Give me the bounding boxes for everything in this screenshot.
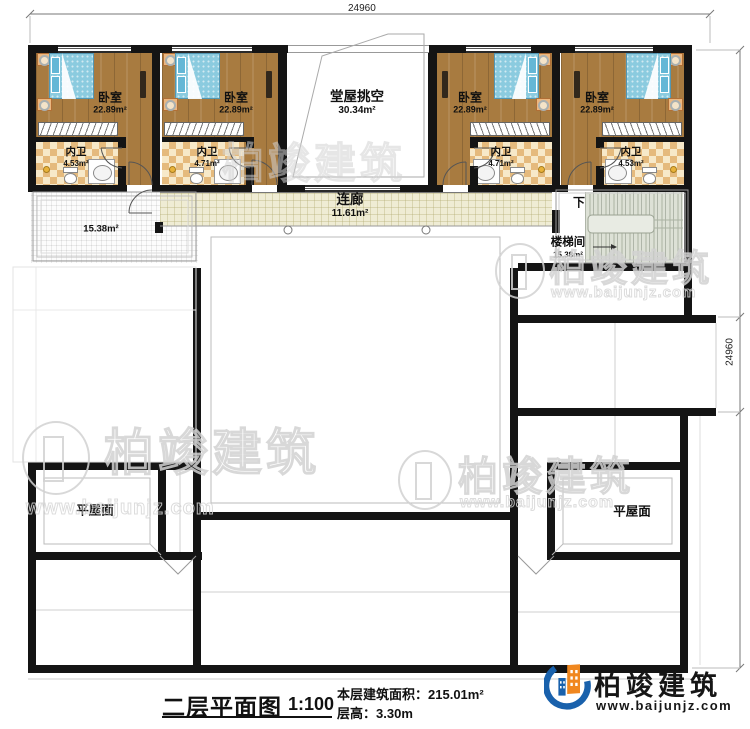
floor-area-row: 本层建筑面积：215.01m² [337, 684, 484, 703]
toilet-icon [190, 173, 203, 184]
bedroom-3-label: 卧室22.89m² [453, 90, 487, 115]
bathroom-4-label: 内卫4.53m² [618, 146, 643, 168]
brand-logo-icon [544, 660, 592, 712]
hall-void-floor [288, 52, 428, 185]
stairwell-label: 楼梯间15.38m² [551, 236, 586, 259]
floor-height-row: 层高：3.30m [337, 703, 413, 722]
sink-icon [219, 165, 238, 181]
watermark-logo-icon [398, 450, 452, 510]
wall [152, 45, 160, 192]
floor-plan-drawing: 卧室22.89m² 卧室22.89m² 卧室22.89m² 卧室22.89m² … [0, 0, 750, 729]
wall [684, 45, 692, 323]
wall [278, 45, 287, 192]
closet-icon [38, 122, 118, 136]
pillow-icon [660, 57, 669, 74]
wall [552, 45, 560, 192]
bedroom-2-furniture [162, 52, 278, 185]
wall [518, 263, 692, 271]
wall [162, 137, 254, 142]
pillow-icon [660, 76, 669, 93]
wall [158, 470, 166, 560]
sink-icon [93, 165, 112, 181]
tv-icon [266, 71, 272, 98]
pillow-icon [528, 76, 537, 93]
wall [518, 408, 716, 416]
lamp-icon [43, 166, 50, 173]
hall-top-opening [288, 45, 429, 53]
pillow-icon [51, 57, 60, 74]
wall [596, 166, 604, 192]
door-opening [252, 185, 277, 192]
wall [470, 137, 552, 142]
toilet-icon [511, 173, 524, 184]
tv-icon [140, 71, 146, 98]
window-icon [466, 45, 531, 53]
wall [596, 137, 684, 142]
wall [118, 166, 126, 192]
window-icon [58, 45, 131, 53]
wall [28, 462, 36, 673]
wall [470, 142, 478, 148]
lamp-icon [169, 166, 176, 173]
sink-counter-icon [88, 159, 115, 184]
closet-icon [164, 122, 244, 136]
watermark: 柏竣建筑 www.baijunjz.com [22, 413, 352, 528]
brand-logo: 柏竣建筑 www.baijunjz.com [544, 660, 744, 720]
flat-roof-left-label: 平屋面 [76, 500, 114, 519]
dimension-right: 24960 [725, 338, 736, 366]
nightstand-icon [668, 98, 683, 111]
closet-icon [470, 122, 550, 136]
pillow-icon [177, 57, 186, 74]
stairs-down-label: 下 [573, 192, 585, 211]
brand-website: www.baijunjz.com [596, 698, 732, 713]
dimension-top: 24960 [348, 3, 376, 14]
nightstand-icon [37, 98, 52, 111]
wall [36, 137, 126, 142]
wall [428, 45, 437, 192]
bedroom-2-label: 卧室22.89m² [219, 90, 253, 115]
drawing-scale: 1:100 [288, 694, 334, 715]
wall [510, 268, 518, 520]
lamp-icon [670, 166, 677, 173]
terrace-area-label: 15.38m² [83, 217, 118, 236]
wall [28, 552, 202, 560]
stairs [585, 192, 683, 263]
hall-label: 堂屋挑空30.34m² [330, 89, 384, 117]
door-opening [127, 185, 152, 192]
tv-icon [574, 71, 580, 98]
door-opening [568, 185, 593, 192]
wall [510, 520, 518, 673]
wall [470, 166, 478, 192]
wall [193, 268, 201, 520]
window-icon [575, 45, 653, 53]
pillow-icon [177, 76, 186, 93]
wall [193, 512, 518, 520]
bedroom-4-label: 卧室22.89m² [580, 90, 614, 115]
title-underline [162, 716, 332, 718]
tv-icon [442, 71, 448, 98]
wall [28, 45, 36, 192]
toilet-icon [643, 173, 656, 184]
bathroom-1-label: 内卫4.53m² [63, 146, 88, 168]
corridor-label: 连廊11.61m² [332, 192, 369, 220]
watermark-logo-icon [495, 243, 545, 299]
bathroom-3-label: 内卫4.71m² [488, 146, 513, 168]
wall [28, 462, 201, 470]
wall [596, 142, 604, 148]
wall [547, 552, 688, 560]
wall [547, 470, 555, 560]
bedroom-1-furniture [36, 52, 152, 185]
wall [518, 315, 716, 323]
window-icon [172, 45, 252, 53]
wall [246, 142, 254, 148]
wall [193, 520, 201, 673]
toilet-icon [64, 173, 77, 184]
wall [680, 416, 688, 673]
bathroom-2-label: 内卫4.71m² [194, 146, 219, 168]
pillow-icon [51, 76, 60, 93]
closet-icon [602, 122, 682, 136]
pillow-icon [528, 57, 537, 74]
door-opening [443, 185, 468, 192]
wall [155, 222, 163, 233]
wall [552, 210, 560, 233]
wall [118, 142, 126, 148]
nightstand-icon [163, 98, 178, 111]
flat-roof-right-label: 平屋面 [613, 501, 651, 520]
wall [547, 462, 688, 470]
bedroom-1-label: 卧室22.89m² [93, 90, 127, 115]
lamp-icon [538, 166, 545, 173]
nightstand-icon [536, 98, 551, 111]
